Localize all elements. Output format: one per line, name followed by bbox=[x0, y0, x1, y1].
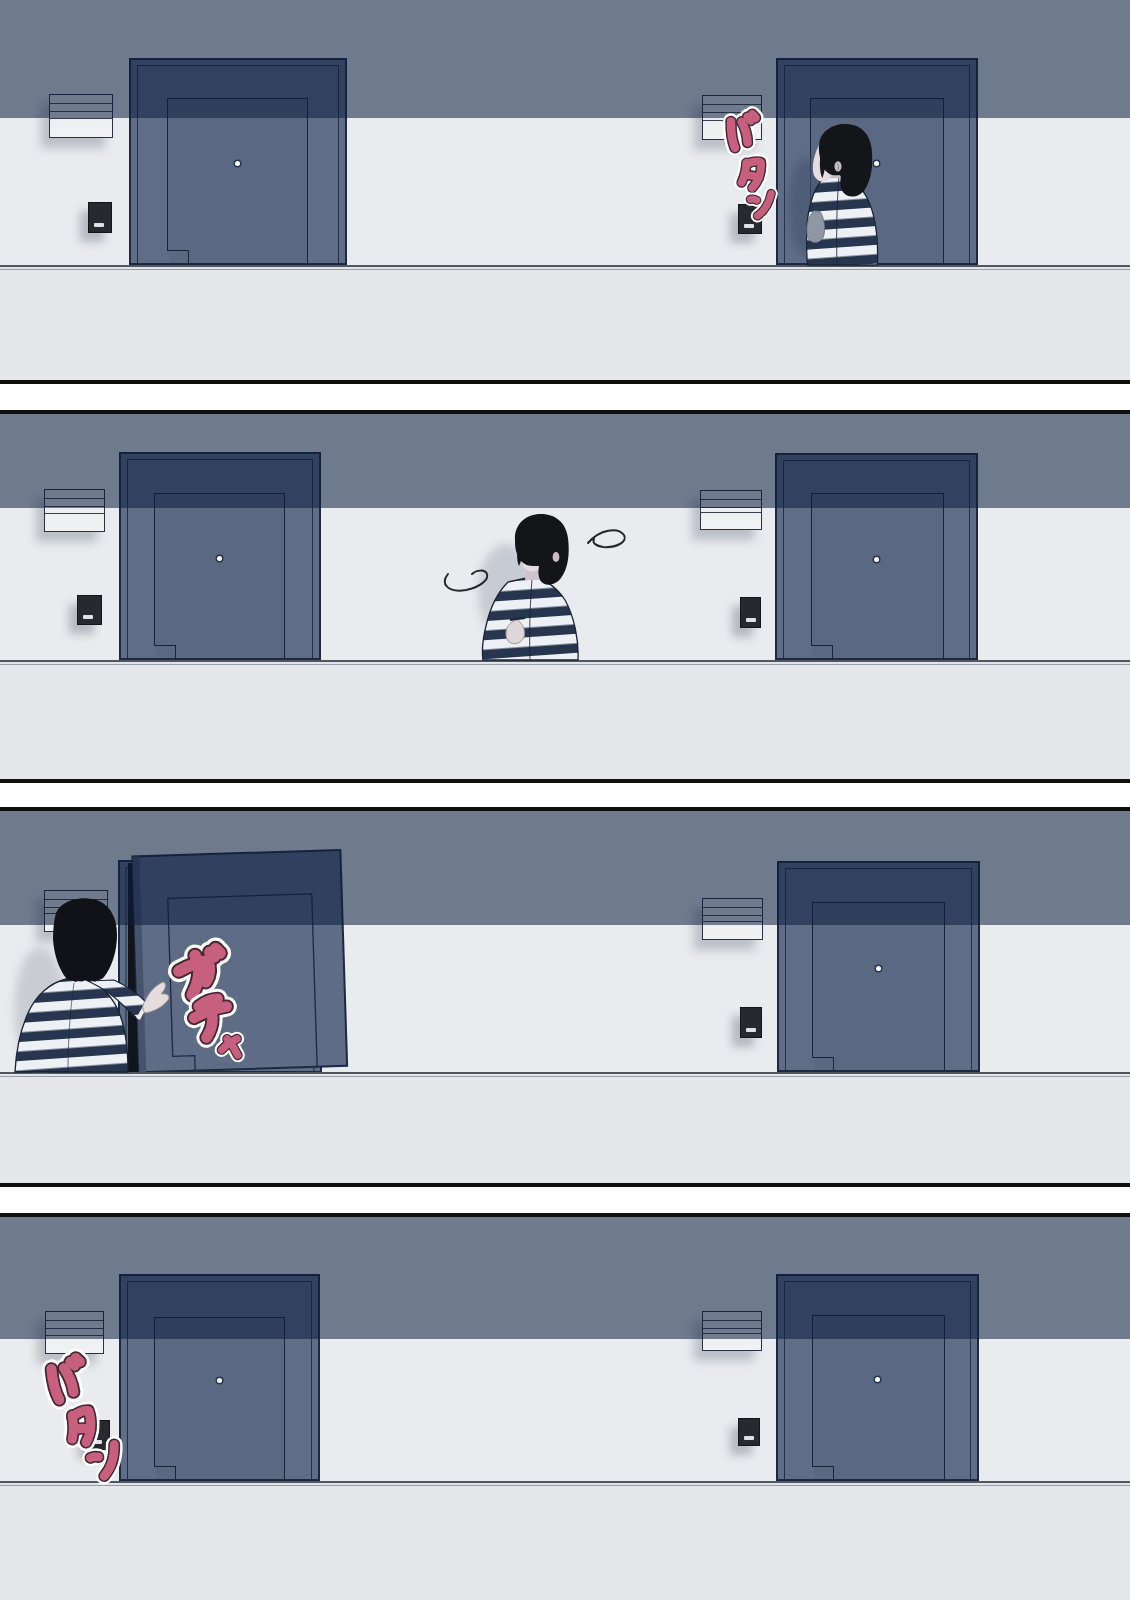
sfx-gacha-door-click bbox=[174, 949, 274, 1074]
hair-back bbox=[53, 898, 117, 982]
upper-wall-shadow-band bbox=[0, 0, 1130, 118]
intercom-icon bbox=[88, 202, 112, 233]
comic-panel-1 bbox=[0, 0, 1130, 384]
door-leaf bbox=[812, 1315, 945, 1479]
sfx-batan-door-slam bbox=[42, 1359, 152, 1484]
door-leaf bbox=[154, 493, 285, 658]
walkway-parapet bbox=[0, 1077, 1130, 1183]
peephole-icon bbox=[235, 161, 240, 166]
door-leaf bbox=[167, 98, 308, 263]
comic-panel-2 bbox=[0, 410, 1130, 783]
comic-panel-3 bbox=[0, 807, 1130, 1187]
intercom-icon bbox=[740, 597, 761, 628]
peephole-icon bbox=[874, 557, 879, 562]
walkway-parapet bbox=[0, 665, 1130, 779]
peephole-icon bbox=[217, 556, 222, 561]
upper-wall-shadow-band bbox=[0, 414, 1130, 508]
intercom-icon bbox=[77, 595, 102, 625]
woman-figure-looking-around bbox=[440, 510, 640, 660]
upper-wall-shadow-band bbox=[0, 1217, 1130, 1339]
door-kickplate-notch bbox=[812, 1466, 834, 1479]
comic-page bbox=[0, 0, 1130, 1600]
sfx-batan-door-slam bbox=[722, 114, 792, 224]
peephole-icon bbox=[217, 1378, 222, 1383]
comic-panel-4 bbox=[0, 1213, 1130, 1600]
door-leaf bbox=[812, 902, 945, 1070]
door-leaf bbox=[811, 493, 944, 658]
woman-figure-entering-door bbox=[0, 891, 175, 1072]
intercom-icon bbox=[740, 1007, 762, 1038]
intercom-icon bbox=[738, 1418, 760, 1446]
door-kickplate-notch bbox=[167, 250, 189, 263]
door-leaf bbox=[154, 1317, 285, 1479]
sfx-glyph-2 bbox=[214, 1029, 254, 1069]
door-kickplate-notch bbox=[812, 1057, 834, 1070]
door-kickplate-notch bbox=[154, 1466, 176, 1479]
sfx-glyph-0 bbox=[719, 111, 762, 154]
sfx-glyph-0 bbox=[37, 1354, 91, 1408]
door-kickplate-notch bbox=[811, 645, 833, 658]
woman-figure-at-door bbox=[780, 120, 895, 265]
walkway-parapet bbox=[0, 270, 1130, 380]
ear bbox=[553, 552, 560, 562]
door-kickplate-notch bbox=[154, 645, 176, 658]
peephole-icon bbox=[876, 966, 881, 971]
peephole-icon bbox=[875, 1377, 880, 1382]
hand bbox=[143, 982, 169, 1013]
walkway-parapet bbox=[0, 1486, 1130, 1600]
motion-swirl-right-icon bbox=[588, 530, 625, 547]
